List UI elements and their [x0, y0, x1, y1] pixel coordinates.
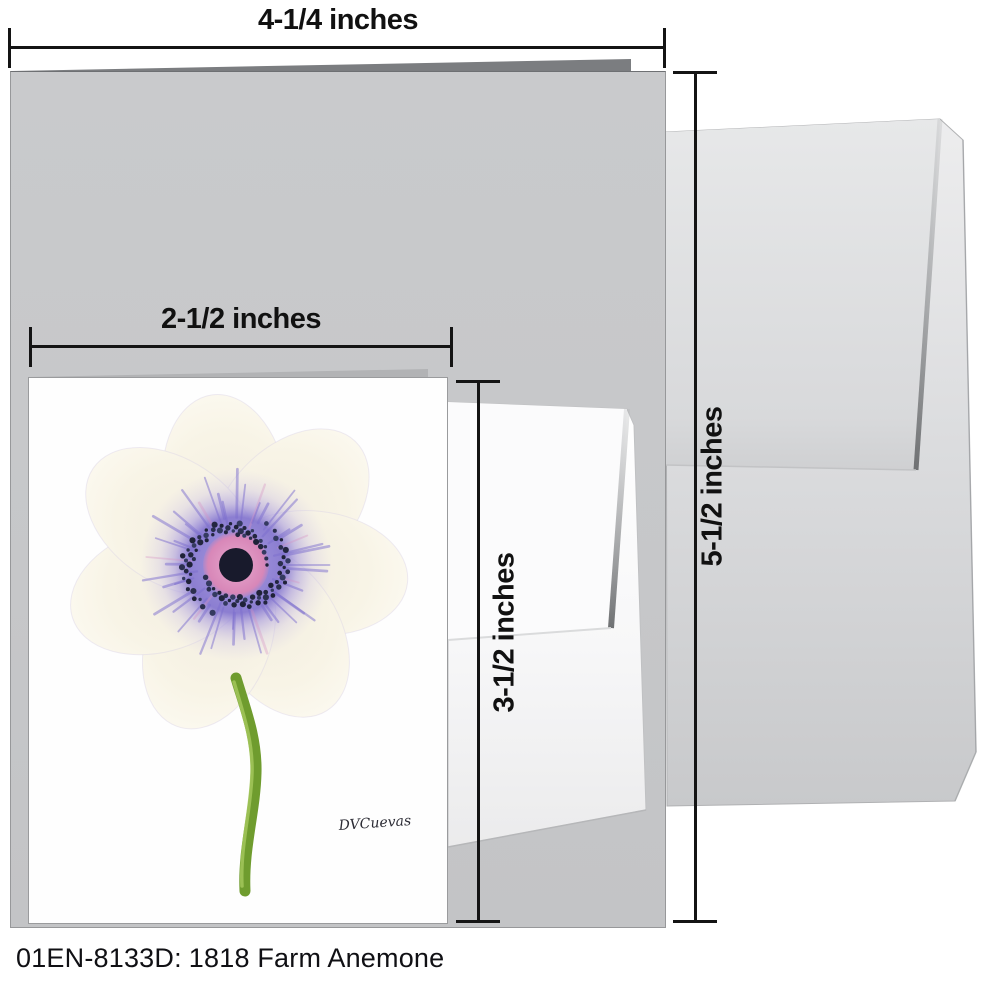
dimension-card-width-label: 4-1/4 inches [8, 4, 668, 37]
flower-center [219, 548, 253, 582]
dimension-card-width: 4-1/4 inches [8, 4, 668, 37]
dimension-insert-width-tick-left [29, 327, 32, 367]
dimension-card-width-line [10, 46, 666, 49]
dimension-card-height-label: 5-1/2 inches [697, 337, 730, 637]
dimension-insert-height-line [477, 382, 480, 923]
dimension-card-height-tick-top [673, 71, 717, 74]
product-image: DVCuevas 4-1/4 inches 2-1/2 inches 3-1/2… [0, 0, 984, 984]
small-card: DVCuevas [28, 377, 448, 924]
artist-signature: DVCuevas [337, 813, 411, 834]
dimension-insert-height-label: 3-1/2 inches [489, 483, 522, 783]
flower-art: DVCuevas [29, 378, 449, 925]
product-caption: 01EN-8133D:1818 Farm Anemone [16, 943, 444, 974]
dimension-insert-height-tick-bottom [456, 920, 500, 923]
dimension-insert-width-label: 2-1/2 inches [29, 303, 453, 336]
small-envelope-flap [448, 402, 627, 640]
dimension-insert-width-line [31, 345, 452, 348]
dimension-card-height-tick-bottom [673, 920, 717, 923]
dimension-insert-height-tick-top [456, 380, 500, 383]
dimension-card-width-tick-right [663, 28, 666, 68]
dimension-insert-width: 2-1/2 inches [29, 303, 453, 336]
product-title: 1818 Farm Anemone [189, 943, 445, 973]
small-envelope [444, 395, 654, 855]
product-sku: 01EN-8133D: [16, 943, 182, 973]
dimension-card-width-tick-left [8, 28, 11, 68]
dimension-insert-width-tick-right [450, 327, 453, 367]
